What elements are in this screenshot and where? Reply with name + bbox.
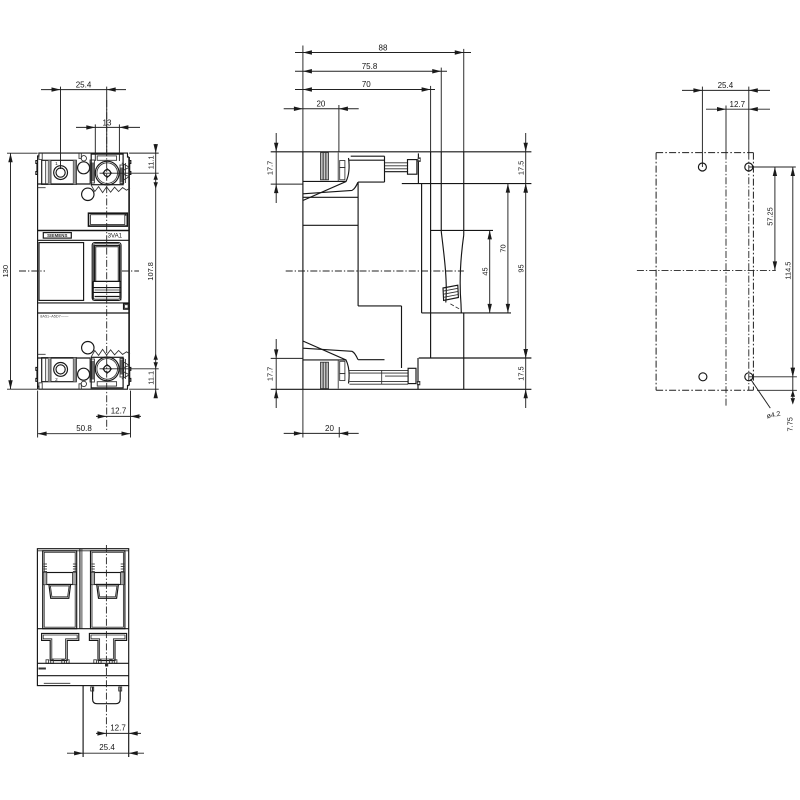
svg-text:17.7: 17.7	[266, 367, 275, 381]
svg-text:25.4: 25.4	[718, 81, 734, 90]
svg-text:17.5: 17.5	[516, 161, 525, 175]
svg-text:114.5: 114.5	[783, 262, 792, 280]
svg-text:75.8: 75.8	[362, 62, 378, 71]
svg-text:7.75: 7.75	[786, 417, 795, 431]
svg-text:13: 13	[103, 118, 112, 127]
svg-text:3VA1: 3VA1	[108, 232, 123, 239]
svg-text:20: 20	[325, 424, 334, 433]
svg-text:1: 1	[55, 161, 58, 166]
svg-text:12.7: 12.7	[110, 724, 126, 733]
svg-text:12.7: 12.7	[111, 407, 127, 416]
svg-text:17.7: 17.7	[266, 161, 275, 175]
svg-text:50.8: 50.8	[76, 424, 92, 433]
svg-text:88: 88	[379, 43, 388, 52]
svg-text:12.7: 12.7	[730, 100, 746, 109]
svg-text:95: 95	[516, 264, 525, 272]
svg-text:70: 70	[499, 244, 508, 252]
svg-text:57.25: 57.25	[766, 207, 775, 226]
svg-text:20: 20	[316, 100, 325, 109]
svg-text:25.4: 25.4	[99, 743, 115, 752]
svg-text:SIEMENS: SIEMENS	[47, 233, 67, 238]
svg-text:11.1: 11.1	[146, 155, 155, 169]
svg-text:45: 45	[480, 267, 489, 275]
svg-text:107.8: 107.8	[146, 262, 155, 281]
svg-text:ø4.2: ø4.2	[766, 411, 781, 421]
svg-text:70: 70	[362, 80, 371, 89]
svg-text:130: 130	[1, 265, 10, 278]
svg-text:25.4: 25.4	[76, 81, 92, 90]
svg-text:2: 2	[55, 377, 58, 382]
svg-text:11.1: 11.1	[146, 371, 155, 385]
svg-text:8A51–A5D7——: 8A51–A5D7——	[40, 314, 68, 318]
svg-text:17.5: 17.5	[516, 366, 525, 380]
